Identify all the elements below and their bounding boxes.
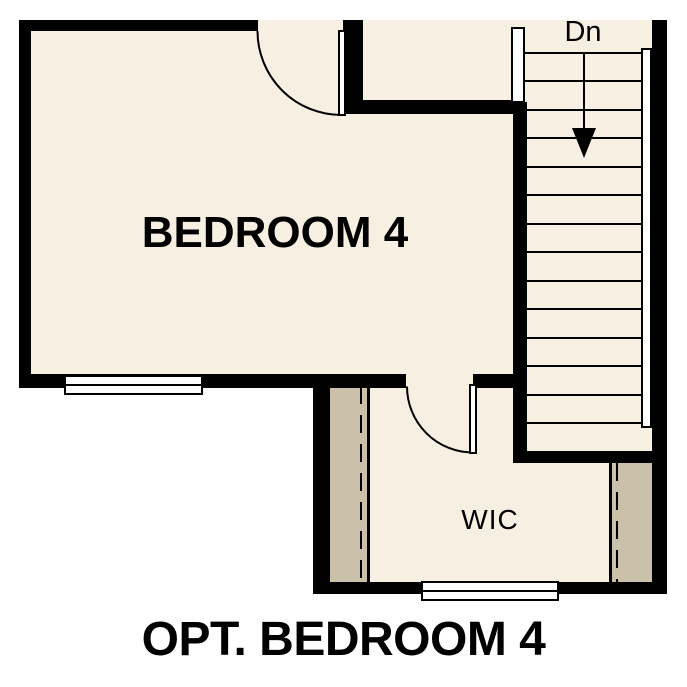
- stair-opening: [511, 27, 525, 103]
- wall-top: [19, 20, 258, 31]
- stair-tread: [525, 365, 652, 367]
- stair-tread: [525, 194, 652, 196]
- wall-hall: [363, 100, 513, 114]
- closet-rod-right: [616, 463, 618, 582]
- stair-tread: [525, 109, 652, 111]
- wic-label: WIC: [430, 504, 550, 536]
- wall-wic-left: [313, 374, 330, 594]
- stair-tread: [525, 223, 652, 225]
- stair-tread: [525, 166, 652, 168]
- bedroom-window-mullion: [66, 384, 201, 386]
- stair-tread: [525, 80, 652, 82]
- wall-stair-left: [513, 102, 527, 463]
- stair-tread: [525, 308, 652, 310]
- stair-rail: [641, 48, 652, 428]
- closet-shelf-left: [330, 386, 370, 582]
- wall-left: [19, 20, 31, 388]
- stair-tread: [525, 422, 652, 424]
- bedroom-window: [64, 375, 203, 395]
- bedroom-label: BEDROOM 4: [115, 208, 435, 258]
- wic-window: [421, 581, 559, 601]
- stair-tread: [525, 337, 652, 339]
- wic-door-leaf: [469, 384, 477, 454]
- closet-rod-left: [360, 386, 362, 582]
- floor-plan: BEDROOM 4 WIC Dn OPT. BEDROOM 4: [0, 0, 687, 687]
- stair-tread: [525, 280, 652, 282]
- stair-arrow-head: [572, 128, 596, 158]
- wall-right: [652, 20, 667, 594]
- wall-entry-stub: [343, 20, 363, 114]
- stair-tread: [525, 251, 652, 253]
- stair-tread: [525, 52, 652, 54]
- wic-window-mullion: [423, 590, 557, 592]
- stair-tread: [525, 394, 652, 396]
- wall-bedroom-bottom-right: [473, 374, 513, 388]
- bedroom-door-leaf: [338, 30, 346, 116]
- wall-stair-bottom: [513, 451, 667, 463]
- stairs-dn-label: Dn: [541, 16, 625, 49]
- plan-title: OPT. BEDROOM 4: [0, 612, 687, 667]
